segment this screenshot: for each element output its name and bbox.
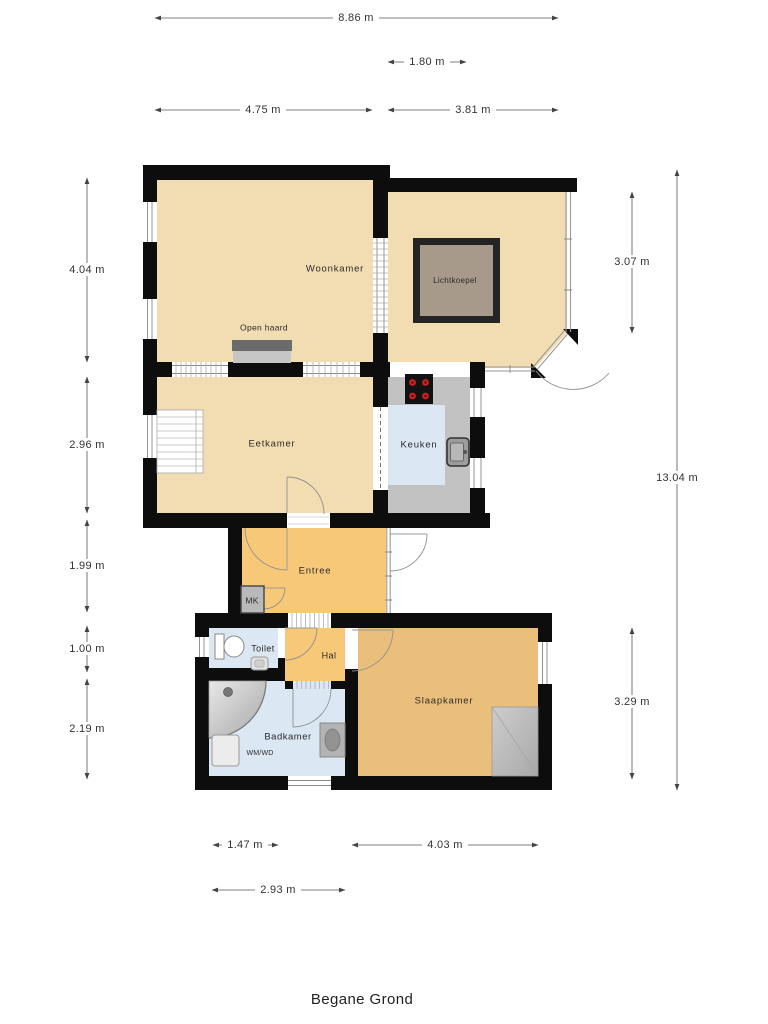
window-woonkamer-bottom-1 — [172, 362, 228, 377]
dimension-slaapkamer-width: 4.03 m — [427, 839, 462, 851]
toilet-icon — [215, 634, 244, 659]
wall-lowerblock-top-right — [331, 613, 552, 628]
door-entree-exterior — [390, 534, 427, 571]
window-toilet-left — [195, 637, 209, 657]
window-divider-serre — [373, 238, 388, 333]
wall-toilet-bottom — [209, 668, 285, 681]
label-keuken: Keuken — [400, 440, 437, 451]
dimension-toilet-height: 1.00 m — [69, 643, 104, 655]
label-entree: Entree — [299, 566, 332, 577]
window-eetkamer-left — [143, 415, 157, 458]
label-slaapkamer: Slaapkamer — [415, 696, 474, 707]
label-woonkamer: Woonkamer — [306, 264, 364, 275]
dimension-slaapkamer-height: 3.29 m — [614, 696, 649, 708]
window-badkamer-bottom — [288, 776, 331, 790]
stove-icon — [405, 374, 433, 404]
dimension-woonkamer-width: 4.75 m — [245, 104, 280, 116]
label-wmwd: WM/WD — [246, 750, 273, 757]
wall-hal-bottom-a — [285, 681, 293, 689]
wall-toilet-hal-stub — [278, 658, 285, 668]
threshold-entree-hal — [292, 613, 328, 628]
wall-keuken-bottom — [373, 513, 490, 528]
bathroom-sink-icon — [320, 723, 345, 757]
wall-woonkamer-left — [143, 165, 157, 377]
wall-keuken-left-top — [373, 362, 388, 407]
label-eetkamer: Eetkamer — [248, 439, 295, 450]
dimension-woonkamer-height: 4.04 m — [69, 264, 104, 276]
label-badkamer: Badkamer — [264, 732, 311, 743]
dimension-toilet-width: 1.47 m — [227, 839, 262, 851]
glass-entree-ticks — [385, 552, 392, 600]
dimension-badkamer-block-width: 2.93 m — [260, 884, 295, 896]
label-lichtkoepel: Lichtkoepel — [433, 276, 477, 285]
dimension-eetkamer-height: 2.96 m — [69, 439, 104, 451]
threshold-eetkamer-entree — [288, 517, 329, 524]
dimension-overall-width: 8.86 m — [338, 12, 373, 24]
wall-slaapkamer-right — [538, 613, 552, 790]
dimension-serre-height: 3.07 m — [614, 256, 649, 268]
window-keuken-right-1 — [470, 388, 485, 417]
dimension-entree-height: 1.99 m — [69, 560, 104, 572]
wall-eetkamer-bottom-right — [330, 513, 390, 528]
window-woonkamer-bottom-2 — [303, 362, 360, 377]
wall-serre-top — [375, 178, 577, 192]
stairs-icon — [157, 410, 203, 473]
page-title: Begane Grond — [311, 991, 413, 1008]
fireplace-icon — [232, 340, 292, 363]
label-hal: Hal — [322, 650, 337, 660]
wall-hal-bottom-b — [331, 681, 358, 689]
bed-icon — [492, 707, 538, 776]
window-woonkamer-left-2 — [143, 299, 157, 339]
dimension-overall-height: 13.04 m — [656, 472, 698, 484]
kitchen-sink-icon — [447, 438, 469, 466]
label-mk: MK — [245, 595, 258, 605]
wall-eetkamer-bottom-left — [143, 513, 287, 528]
washer-icon — [212, 735, 239, 766]
wall-bottom-right — [331, 776, 552, 790]
wall-woonkamer-top — [143, 165, 390, 180]
wall-keuken-right — [470, 362, 485, 528]
window-keuken-right-2 — [470, 458, 485, 488]
dimension-badkamer-height: 2.19 m — [69, 723, 104, 735]
label-open-haard: Open haard — [240, 322, 288, 332]
wall-keuken-left-bottom — [373, 490, 388, 513]
dimension-serre-width: 3.81 m — [455, 104, 490, 116]
toilet-sink-icon — [251, 657, 268, 670]
floorplan-page: Woonkamer Lichtkoepel Open haard Eetkame… — [0, 0, 768, 1024]
wall-bottom-left — [195, 776, 288, 790]
dimension-serre-door-width: 1.80 m — [409, 56, 444, 68]
label-toilet: Toilet — [251, 643, 275, 653]
floor-plan: Woonkamer Lichtkoepel Open haard Eetkame… — [0, 0, 768, 1024]
wall-entree-left — [228, 513, 242, 613]
window-woonkamer-left-1 — [143, 202, 157, 242]
window-slaapkamer-right — [538, 642, 552, 684]
